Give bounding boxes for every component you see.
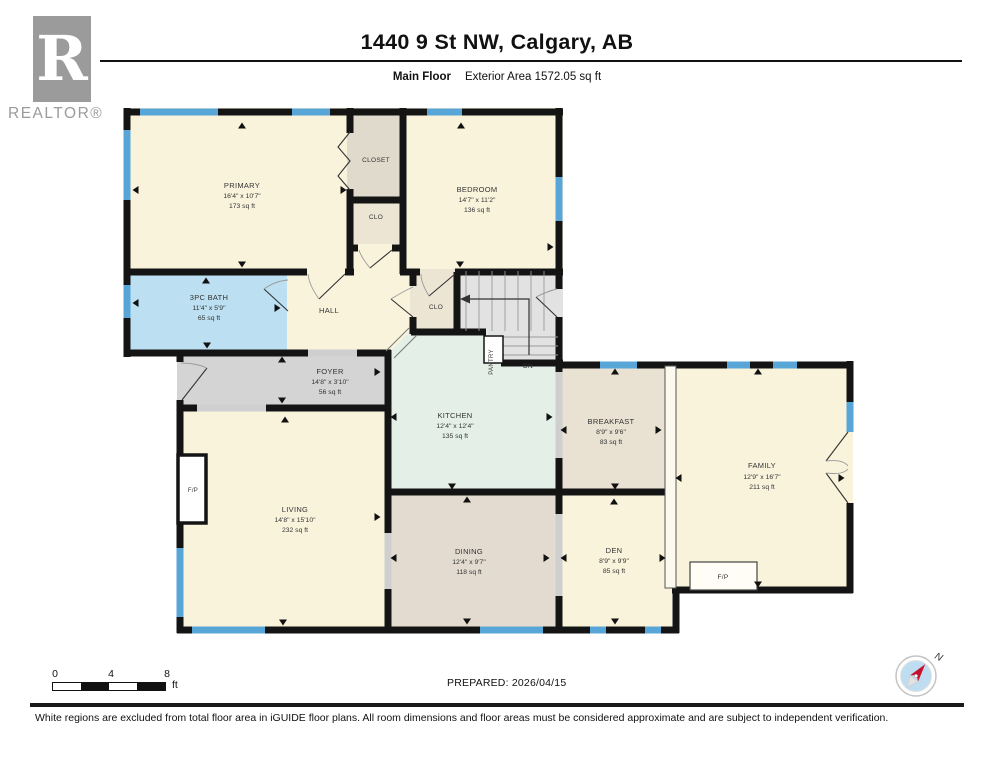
bedroom-dims: 14'7" x 11'2"	[459, 197, 496, 204]
primary-dims: 16'4" x 10'7"	[223, 193, 261, 200]
foyer-dims: 14'8" x 3'10"	[311, 379, 349, 386]
clo-stairs-label: CLO	[429, 304, 443, 311]
room-fill-primary	[124, 108, 353, 275]
room-fill-closet	[347, 108, 406, 203]
scale-tick-4: 4	[108, 668, 114, 680]
dining-area: 118 sq ft	[456, 569, 482, 576]
footer-divider	[30, 703, 964, 707]
fireplace-living-label: F/P	[188, 488, 198, 494]
railing	[665, 366, 676, 588]
closet-label: CLOSET	[362, 157, 390, 164]
kitchen-label: KITCHEN	[437, 411, 472, 420]
bath-label: 3PC BATH	[190, 293, 229, 302]
scale-unit: ft	[172, 679, 178, 691]
bath-area: 65 sq ft	[198, 315, 220, 322]
kitchen-area: 135 sq ft	[442, 433, 468, 440]
bedroom-area: 136 sq ft	[464, 207, 490, 214]
disclaimer-text: White regions are excluded from total fl…	[35, 712, 975, 724]
kitchen-dims: 12'4" x 12'4"	[436, 423, 474, 430]
primary-area: 173 sq ft	[229, 203, 255, 210]
floor-plan-canvas: PRIMARY 16'4" x 10'7" 173 sq ft BEDROOM …	[0, 0, 994, 768]
room-fill-clo-upper	[347, 197, 406, 251]
floor-plan-svg: PRIMARY 16'4" x 10'7" 173 sq ft BEDROOM …	[0, 0, 994, 768]
dining-dims: 12'4" x 9'7"	[452, 559, 486, 566]
room-fill-breakfast	[556, 362, 668, 493]
clo-upper-label: CLO	[369, 214, 383, 221]
prepared-date: PREPARED: 2026/04/15	[447, 677, 566, 689]
scale-bar: 0 4 8 ft	[52, 668, 252, 698]
living-label: LIVING	[282, 505, 308, 514]
scale-bar-strip	[52, 682, 166, 691]
fireplace-family-label: F/P	[717, 574, 728, 581]
primary-label: PRIMARY	[224, 181, 260, 190]
foyer-label: FOYER	[316, 367, 344, 376]
living-area: 232 sq ft	[282, 527, 308, 534]
scale-tick-8: 8	[164, 668, 170, 680]
family-label: FAMILY	[748, 461, 776, 470]
breakfast-area: 83 sq ft	[600, 439, 622, 446]
den-area: 85 sq ft	[603, 568, 625, 575]
living-dims: 14'8" x 15'10"	[274, 517, 316, 524]
compass-north-label: N	[933, 651, 945, 664]
den-dims: 8'9" x 9'9"	[599, 558, 629, 565]
bedroom-label: BEDROOM	[457, 185, 498, 194]
bath-dims: 11'4" x 5'9"	[193, 305, 227, 312]
dining-label: DINING	[455, 547, 483, 556]
hall-label: HALL	[319, 306, 339, 315]
room-fill-clo-stairs	[410, 269, 460, 335]
room-fill-foyer	[177, 350, 391, 411]
den-label: DEN	[606, 546, 623, 555]
floor-plan-page: 1440 9 St NW, Calgary, AB Main FloorExte…	[0, 0, 994, 768]
pantry-label: PANTRY	[489, 349, 495, 375]
family-area: 211 sq ft	[749, 484, 775, 491]
breakfast-dims: 8'9" x 9'6"	[596, 429, 626, 436]
stairs-dn-label: DN	[523, 363, 533, 370]
scale-tick-0: 0	[52, 668, 58, 680]
foyer-area: 56 sq ft	[319, 389, 341, 396]
family-dims: 12'9" x 16'7"	[743, 474, 781, 481]
compass-icon: N	[890, 646, 950, 702]
breakfast-label: BREAKFAST	[588, 417, 635, 426]
